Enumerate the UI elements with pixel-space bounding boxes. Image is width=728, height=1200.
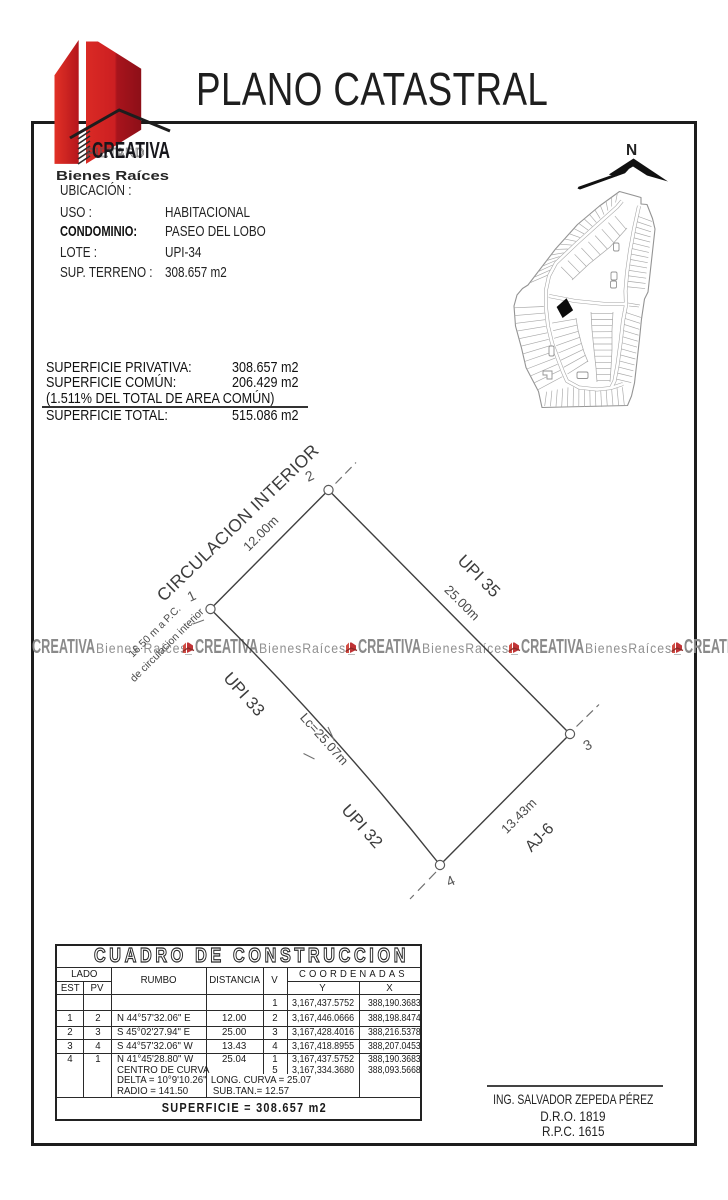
svg-text:AJ-6: AJ-6 — [522, 820, 557, 855]
svg-text:25.00m: 25.00m — [442, 582, 483, 623]
svg-text:1: 1 — [185, 587, 199, 605]
svg-text:CREATIVA: CREATIVA — [92, 137, 170, 163]
svg-text:UPI 33: UPI 33 — [220, 669, 269, 720]
svg-text:13.43m: 13.43m — [498, 795, 539, 836]
svg-text:N: N — [626, 142, 637, 159]
svg-text:4: 4 — [444, 872, 458, 890]
svg-text:Lc=25.07m: Lc=25.07m — [297, 710, 351, 768]
svg-text:UPI 32: UPI 32 — [338, 801, 387, 852]
svg-text:3: 3 — [581, 736, 595, 754]
